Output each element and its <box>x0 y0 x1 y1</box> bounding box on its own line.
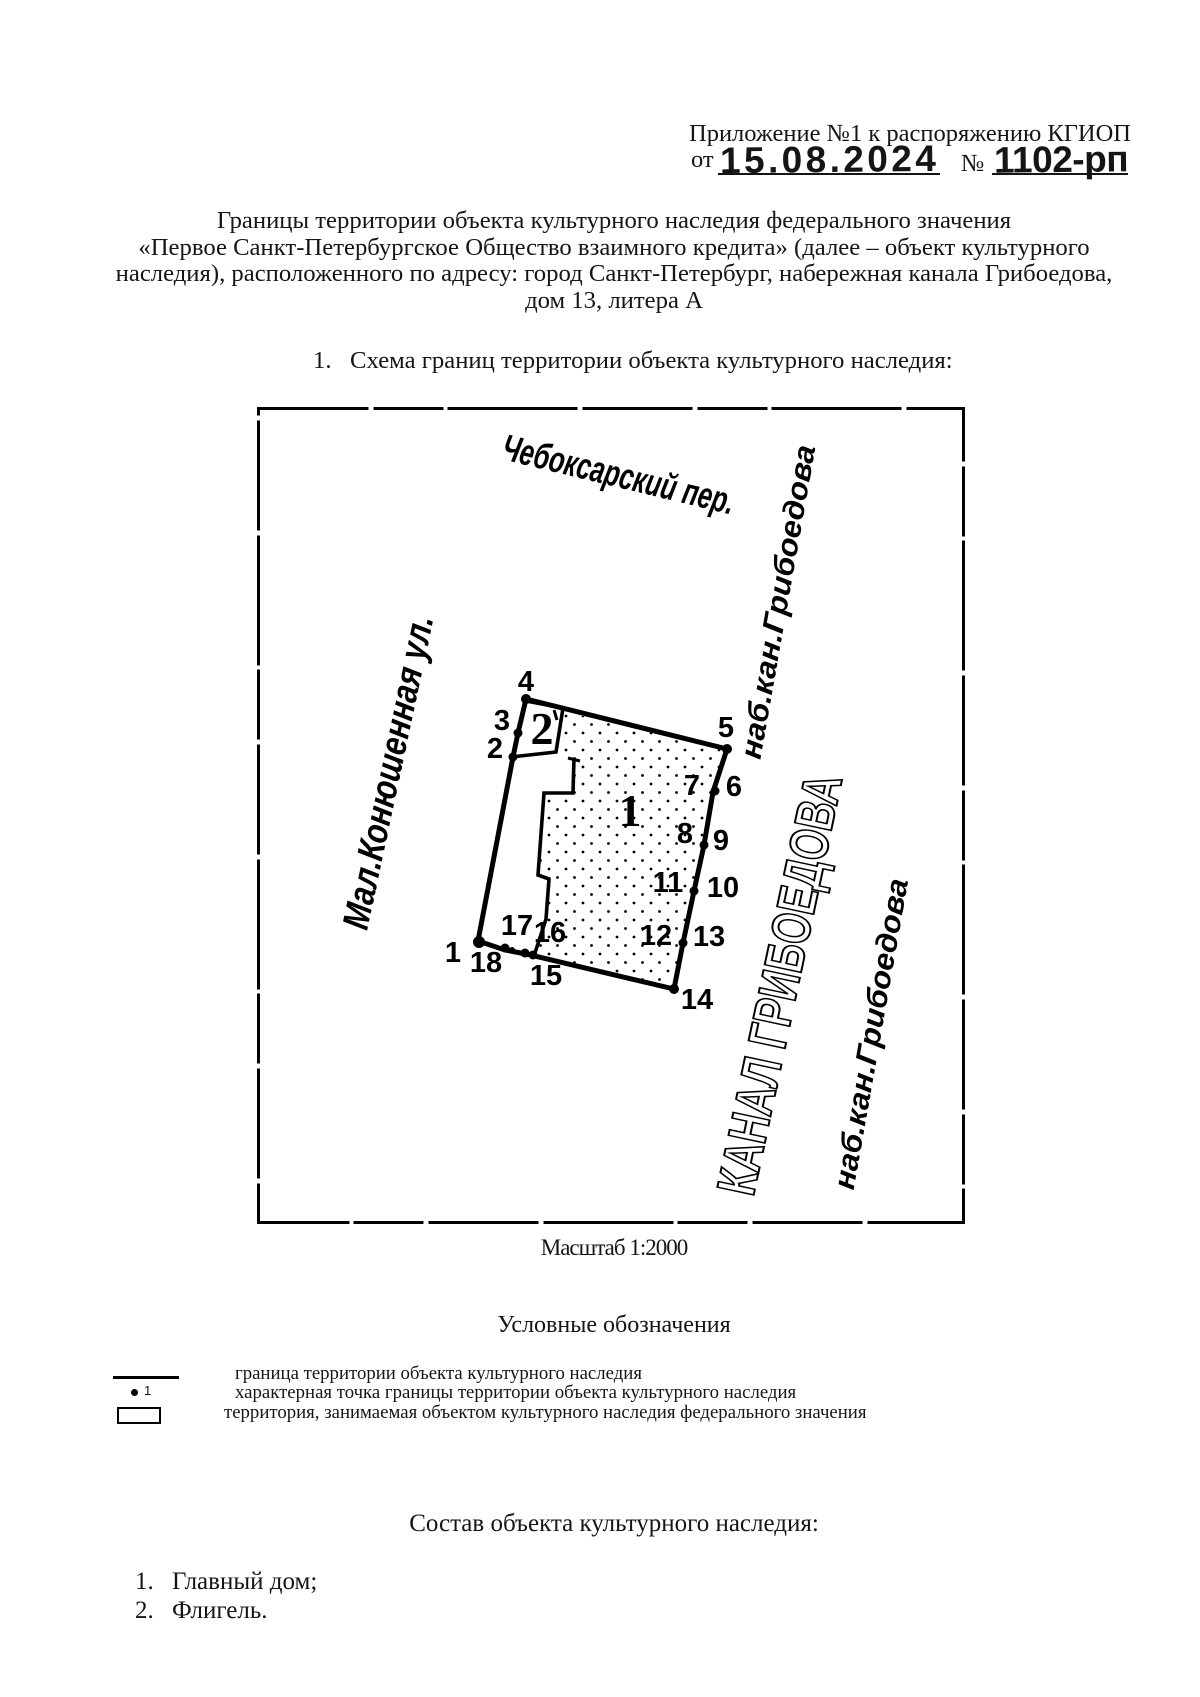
svg-text:2: 2 <box>531 703 554 754</box>
svg-text:6: 6 <box>726 771 742 803</box>
svg-text:Чебоксарский пер.: Чебоксарский пер. <box>498 427 739 523</box>
svg-text:18: 18 <box>470 947 502 979</box>
svg-text:4: 4 <box>518 666 534 698</box>
svg-text:наб.кан.Грибоедова: наб.кан.Грибоедова <box>828 876 915 1192</box>
svg-text:9: 9 <box>713 825 729 857</box>
svg-text:13: 13 <box>693 921 725 953</box>
svg-text:1: 1 <box>619 785 642 836</box>
svg-text:1: 1 <box>445 937 461 969</box>
svg-text:наб.кан.Грибоедова: наб.кан.Грибоедова <box>735 442 823 761</box>
svg-text:2: 2 <box>487 733 503 765</box>
svg-text:5: 5 <box>718 712 734 744</box>
svg-text:15: 15 <box>530 960 562 992</box>
svg-text:11: 11 <box>653 867 684 899</box>
svg-text:7: 7 <box>684 770 700 802</box>
svg-text:10: 10 <box>707 872 739 904</box>
svg-text:8: 8 <box>677 818 693 850</box>
svg-text:16: 16 <box>534 917 566 949</box>
svg-text:14: 14 <box>681 984 713 1016</box>
svg-text:17: 17 <box>501 910 533 942</box>
svg-text:Мал.Конюшенная ул.: Мал.Конюшенная ул. <box>335 611 442 933</box>
svg-text:12: 12 <box>640 920 672 952</box>
